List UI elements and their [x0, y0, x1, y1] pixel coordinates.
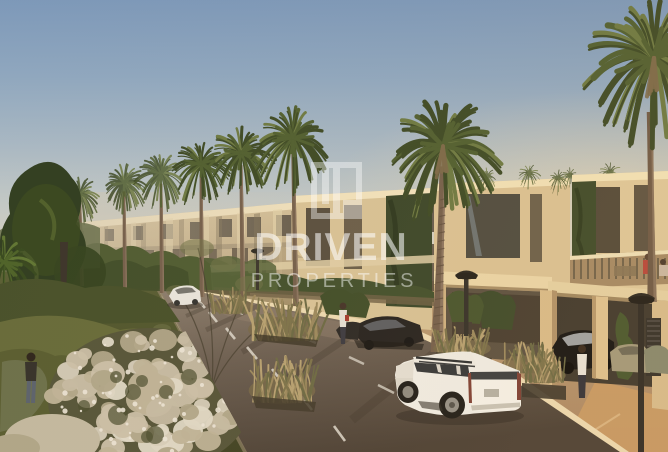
svg-text:DRIVEN: DRIVEN [254, 226, 407, 269]
svg-text:PROPERTIES: PROPERTIES [251, 270, 418, 292]
